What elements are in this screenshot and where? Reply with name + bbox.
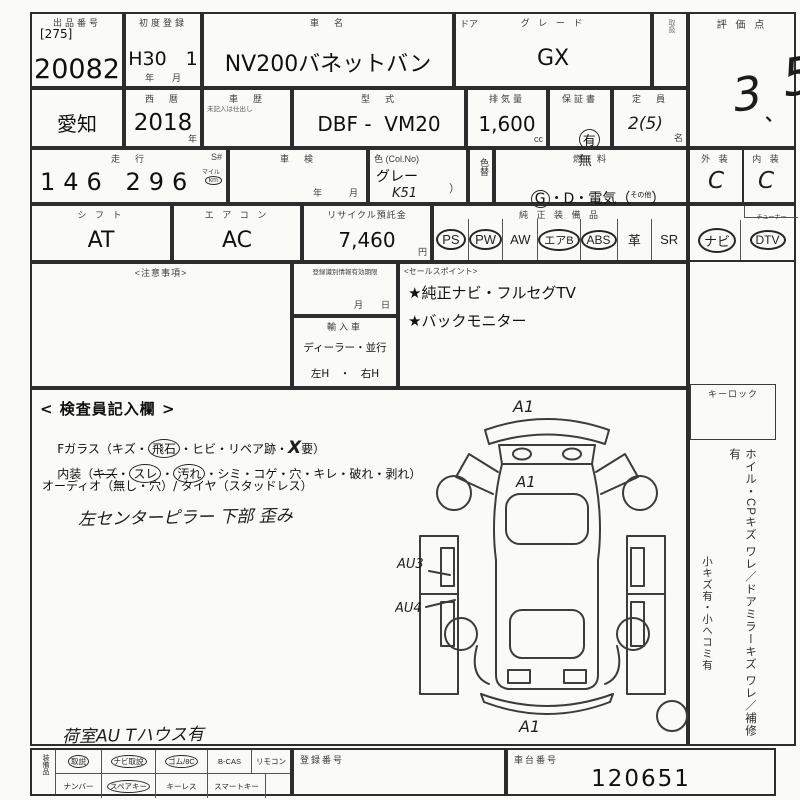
first-registration-unit: 年 月: [126, 71, 200, 84]
sales-points-box: <セールスポイント> ★純正ナビ・フルセグTV ★バックモニター: [398, 262, 688, 388]
acc-keyless: キーレス: [167, 781, 197, 792]
first-registration-label: 初度登録: [126, 16, 200, 29]
mirror-right: [596, 454, 638, 494]
acc-cell: ゴム/8C: [156, 750, 208, 773]
mileage-box: 走 行 S# 146 296 マイル km: [30, 148, 228, 204]
mileage-label: 走 行: [32, 152, 226, 165]
color-change-box: 色替: [468, 148, 494, 204]
car-name-label: 車 名: [204, 16, 452, 29]
rear-flare-right: [605, 646, 619, 684]
interior-label: 内 装: [740, 152, 794, 165]
year-box: 西 暦 2018 年: [124, 88, 202, 148]
acc-cell: リモコン: [252, 750, 290, 773]
sidebar-wheel-mirror-text: ホイル・CPキズ ワレ／ドアミラーキズ ワレ／補修有: [726, 448, 758, 744]
acc-remote: リモコン: [256, 756, 286, 767]
chassis-number-label: 車台番号: [514, 753, 558, 766]
equip-cell: PS: [434, 219, 468, 260]
equipment-badges: PS PW AW エアB ABS 革 SR: [434, 219, 686, 260]
model-label: 型 式: [294, 92, 464, 105]
dtv-cell: DTV: [740, 220, 794, 260]
acc-cell: 取説: [56, 750, 102, 773]
equip-cell: ABS: [580, 219, 617, 260]
defect-label-a1-rear: A1: [518, 717, 540, 736]
cowl-vent-left: [513, 449, 531, 460]
defect-label-au4: AU4: [395, 601, 422, 616]
import-label: 輸入車: [294, 320, 396, 333]
acc-bcas: B-CAS: [218, 757, 241, 766]
acc-cell: スペアキー: [102, 774, 156, 798]
equip-cell: AW: [502, 219, 537, 260]
first-registration-box: 初度登録 H30 1 年 月: [124, 12, 202, 88]
rear-bumper-inner: [484, 702, 610, 714]
warranty-yes-circled: 有: [579, 129, 600, 150]
grade-label: グ レ ー ド: [456, 16, 650, 29]
blank-stamp-circle: [657, 701, 687, 731]
equip-cell: PW: [468, 219, 503, 260]
score-label: 評 価 点: [690, 16, 794, 31]
accessories-header-cell: 装備品: [32, 750, 56, 794]
fuel-other-label: その他: [630, 191, 651, 199]
recycle-fee-value: 7,460: [304, 228, 430, 252]
cowl-vent-right: [563, 449, 581, 460]
acc-cell: ナビ取説: [102, 750, 156, 773]
shaken-units: 年 月: [313, 186, 358, 199]
prefecture: 愛知: [32, 108, 122, 137]
sales-point-1: ★純正ナビ・フルセグTV: [408, 282, 576, 303]
exterior-cell: 外 装 C: [690, 150, 744, 202]
sales-points-label: <セールスポイント>: [404, 266, 477, 277]
acc-cell: [266, 774, 290, 798]
warranty-box: 保証書 有 無: [548, 88, 612, 148]
first-registration-value: H30 1: [126, 44, 200, 71]
recycle-fee-label: リサイクル預託金: [304, 208, 430, 221]
score-value: 3、5: [696, 34, 800, 147]
inspector-title: < 検査員記入欄 >: [40, 398, 176, 419]
equip-badge-leather: 革: [628, 230, 641, 249]
shift-value: AT: [32, 228, 170, 253]
keylock-label: キーロック: [691, 387, 775, 400]
sidebar-small-scratch-text: 小キズ有・小ヘコミ有: [700, 556, 715, 746]
accessories-table: 装備品 取説 ナビ取説 ゴム/8C B-CAS リモコン ナンバー スペアキー …: [30, 748, 292, 796]
color-paren: ）: [449, 180, 460, 196]
capacity-unit: 名: [674, 131, 683, 144]
aircon-value: AC: [174, 228, 300, 253]
acc-spare-key: スペアキー: [107, 780, 150, 793]
handle-options: 左H ・ 右H: [294, 366, 396, 381]
equip-badge-dtv: DTV: [750, 230, 786, 250]
displacement-unit: cc: [534, 134, 543, 144]
auction-number: 20082: [32, 54, 122, 85]
model-value: DBF - VM20: [294, 112, 464, 136]
registration-id-units: 月 日: [354, 298, 390, 311]
shaken-label: 車 検: [230, 152, 366, 165]
equip-badge-airbag: エアB: [538, 229, 579, 251]
aircon-box: エ ア コ ン AC: [172, 204, 302, 262]
registration-number-label: 登録番号: [300, 753, 344, 766]
equipment-box: 純 正 装 備 品 PS PW AW エアB ABS 革 SR: [432, 204, 688, 262]
windshield: [506, 494, 588, 544]
history-box: 車 歴 未記入は仕出し: [202, 88, 292, 148]
acc-gomu-8c: ゴム/8C: [165, 755, 198, 768]
equip-cell: エアB: [537, 219, 579, 260]
recycle-fee-box: リサイクル預託金 7,460 円: [302, 204, 432, 262]
warranty-label: 保証書: [550, 92, 610, 105]
rear-window: [510, 610, 584, 658]
recycle-fee-unit: 円: [418, 245, 427, 258]
auction-sheet: 出品番号 [275] 20082 初度登録 H30 1 年 月 車 名 NV20…: [0, 0, 800, 800]
score-decimal-mark: 、: [761, 94, 787, 129]
equip-badge-pw: PW: [469, 229, 502, 250]
registration-id-label: 登録識別情報有効期限: [294, 266, 396, 276]
mileage-s-mark: S#: [211, 152, 222, 162]
displacement-value: 1,600: [468, 112, 546, 136]
defect-label-a1-hood: A1: [515, 473, 536, 491]
shaken-box: 車 検 年 月: [228, 148, 368, 204]
capacity-value: 2(5): [628, 114, 663, 134]
car-diagram: A1 A1 AU3 AU4 A1: [395, 388, 690, 746]
front-bumper: [485, 419, 609, 444]
nav-dtv-box: チューナー ナビ DTV: [688, 204, 796, 262]
acc-manual: 取説: [68, 755, 89, 768]
keylock-box: キーロック: [690, 384, 776, 440]
color-label: 色 (Col.No): [374, 152, 419, 165]
equip-cell: 革: [617, 219, 652, 260]
rear-bumper-outer: [481, 694, 613, 706]
tail-light-left: [508, 670, 530, 683]
fuel-box: 燃 料 G・D・電気（その他）: [494, 148, 688, 204]
defect-label-a1-front: A1: [512, 397, 534, 416]
accessories-row-1: 取説 ナビ取説 ゴム/8C B-CAS リモコン: [56, 750, 290, 774]
car-name-box: 車 名 NV200バネットバン: [202, 12, 454, 88]
color-value: グレー: [376, 166, 418, 186]
side-panel-right: [627, 536, 665, 694]
mileage-unit-mile: マイル: [202, 167, 220, 176]
exterior-label: 外 装: [690, 152, 742, 165]
side-window-right-1: [631, 548, 644, 586]
prefecture-box: 愛知: [30, 88, 124, 148]
shift-box: シ フ ト AT: [30, 204, 172, 262]
car-name: NV200バネットバン: [204, 46, 452, 78]
mileage-unit-km: km: [205, 176, 222, 185]
inspector-audio-line: オーディオ（無し・穴）/ タイヤ（スタッドレス）: [42, 477, 313, 494]
displacement-box: 排気量 1,600 cc: [466, 88, 548, 148]
exterior-interior-box: 外 装 C 内 装 C: [688, 148, 796, 204]
capacity-box: 定 員 2(5) 名: [612, 88, 688, 148]
color-box: 色 (Col.No) グレー K51 ）: [368, 148, 468, 204]
sales-point-2: ★バックモニター: [408, 310, 526, 331]
tail-light-right: [564, 670, 586, 683]
equip-badge-ps: PS: [436, 229, 465, 250]
chassis-number-box: 車台番号 120651: [506, 748, 776, 796]
acc-number-plate: ナンバー: [64, 781, 94, 792]
tuner-header: チューナー: [744, 206, 798, 218]
notice-box: <注意事項>: [30, 262, 292, 388]
color-change-label: 色替: [478, 158, 491, 176]
interior-grade: C: [758, 168, 774, 194]
model-box: 型 式 DBF - VM20: [292, 88, 466, 148]
year-label: 西 暦: [126, 92, 200, 105]
mileage-value: 146 296: [40, 168, 195, 196]
equip-badge-sr: SR: [660, 232, 678, 247]
side-window-left-1: [441, 548, 454, 586]
chassis-number-value: 120651: [508, 766, 774, 792]
equip-cell: SR: [651, 219, 686, 260]
equip-badge-abs: ABS: [581, 230, 617, 250]
handling-label: 取扱: [666, 19, 676, 33]
accessories-header: 装備品: [40, 754, 50, 775]
front-wheel-right: [623, 476, 657, 510]
aircon-label: エ ア コ ン: [174, 208, 300, 221]
km-circled: km: [205, 176, 222, 185]
acc-cell: B-CAS: [208, 750, 252, 773]
fuel-label: 燃 料: [496, 152, 686, 165]
acc-smart-key: スマートキー: [214, 781, 259, 792]
registration-number-box: 登録番号: [292, 748, 506, 796]
mirror-left: [456, 454, 498, 494]
acc-cell: キーレス: [156, 774, 208, 798]
shift-label: シ フ ト: [32, 208, 170, 221]
exterior-grade: C: [708, 168, 724, 194]
acc-cell: ナンバー: [56, 774, 102, 798]
inspector-note-cargo: 荷室AU Tハウス有: [62, 720, 204, 747]
displacement-label: 排気量: [468, 92, 546, 105]
notice-label: <注意事項>: [32, 266, 290, 279]
front-wheel-left: [437, 476, 471, 510]
score-box: 評 価 点 3、5: [688, 12, 796, 148]
score-digit-1: 3: [729, 65, 766, 123]
au3-pointer-line: [429, 571, 450, 575]
import-options: ディーラー・並行: [294, 340, 396, 355]
equip-badge-nav: ナビ: [698, 228, 736, 253]
nav-cell: ナビ: [690, 220, 744, 260]
acc-cell: スマートキー: [208, 774, 266, 798]
defect-label-au3: AU3: [396, 557, 424, 572]
equip-badge-aw: AW: [510, 232, 530, 247]
accessories-row-2: ナンバー スペアキー キーレス スマートキー: [56, 774, 290, 798]
registration-id-box: 登録識別情報有効期限 月 日: [292, 262, 398, 316]
rear-flare-left: [475, 646, 489, 684]
side-window-right-2: [631, 602, 644, 646]
auction-bracket: [275]: [40, 27, 72, 41]
acc-nav-manual: ナビ取説: [111, 755, 147, 768]
handling-box: 取扱: [652, 12, 688, 88]
rear-wheel-left: [445, 618, 477, 650]
auction-number-box: 出品番号 [275] 20082: [30, 12, 124, 88]
grade-value: GX: [456, 46, 650, 71]
year-unit: 年: [188, 132, 197, 145]
inspector-note-pillar: 左センターピラー 下部 歪み: [78, 501, 293, 530]
import-box: 輸入車 ディーラー・並行 左H ・ 右H: [292, 316, 398, 388]
side-panel-left: [420, 536, 458, 694]
history-note: 未記入は仕出し: [207, 103, 253, 113]
capacity-label: 定 員: [614, 92, 686, 105]
color-number: K51: [392, 186, 417, 201]
interior-cell: 内 装 C: [740, 150, 794, 202]
grade-box: ドア グ レ ー ド GX: [454, 12, 652, 88]
